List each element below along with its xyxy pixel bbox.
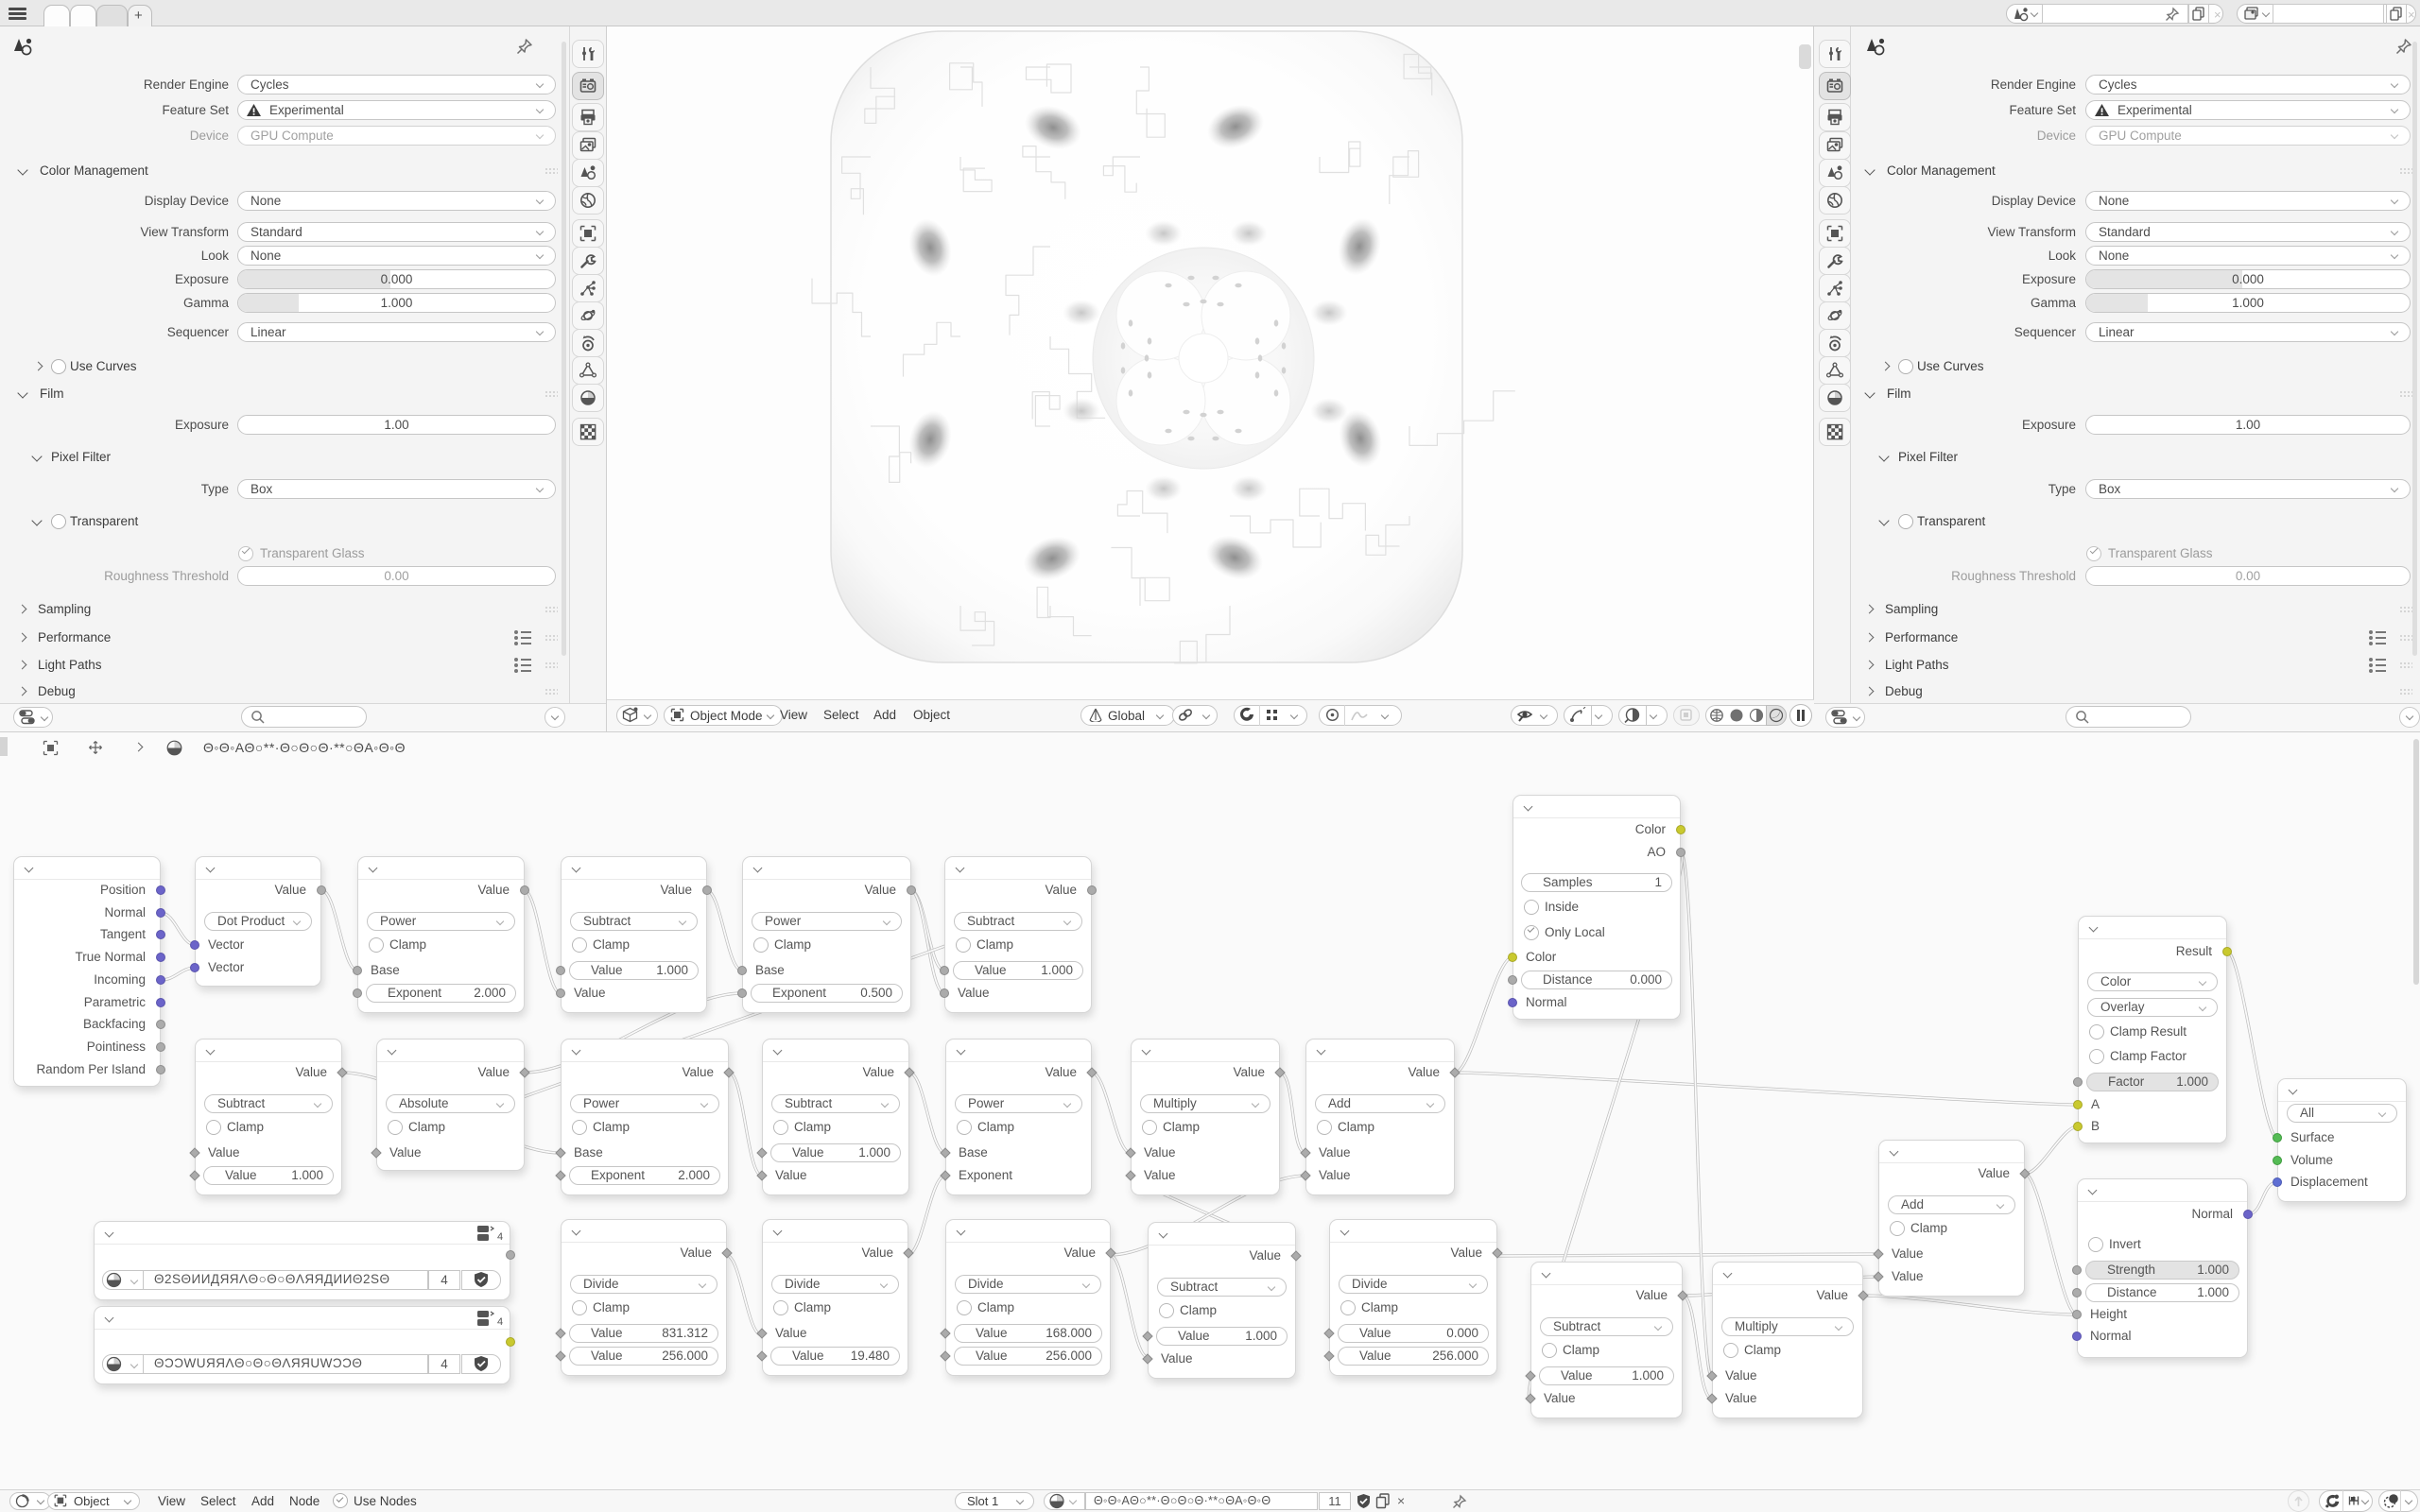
svg-text:4: 4 bbox=[497, 1231, 503, 1242]
svg-text:4: 4 bbox=[497, 1316, 503, 1327]
